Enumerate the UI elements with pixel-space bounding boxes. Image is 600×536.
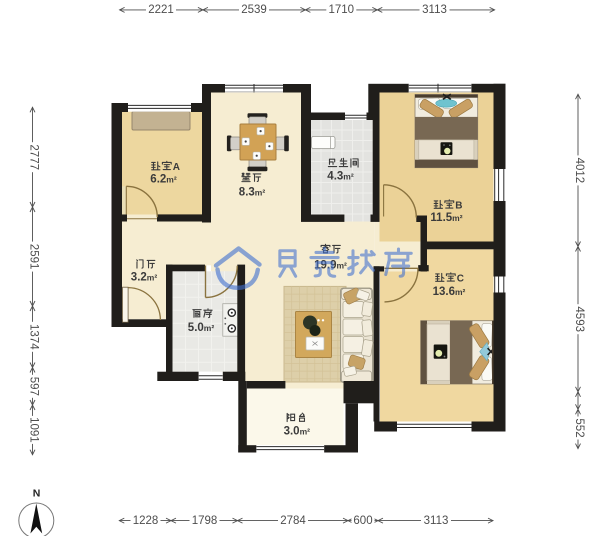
svg-text:1710: 1710: [329, 4, 355, 16]
svg-text:3113: 3113: [422, 4, 447, 16]
svg-text:2591: 2591: [27, 244, 39, 270]
svg-text:552: 552: [573, 418, 585, 437]
svg-text:13.6m²: 13.6m²: [433, 286, 466, 298]
svg-text:3.0m²: 3.0m²: [284, 425, 311, 437]
svg-text:N: N: [33, 488, 41, 500]
svg-text:2221: 2221: [148, 4, 174, 16]
svg-text:A: A: [173, 162, 180, 173]
svg-text:8.3m²: 8.3m²: [239, 186, 266, 198]
svg-text:1374: 1374: [27, 324, 39, 350]
svg-text:3113: 3113: [424, 515, 449, 527]
svg-text:1091: 1091: [27, 417, 39, 443]
svg-text:1228: 1228: [133, 515, 159, 527]
svg-text:600: 600: [353, 515, 372, 527]
svg-text:B: B: [455, 200, 462, 211]
svg-text:2539: 2539: [241, 4, 267, 16]
svg-text:C: C: [457, 273, 464, 284]
svg-text:11.5m²: 11.5m²: [430, 212, 462, 224]
svg-text:597: 597: [27, 377, 39, 396]
svg-text:1798: 1798: [192, 515, 218, 527]
svg-text:6.2m²: 6.2m²: [150, 173, 177, 185]
svg-text:4.3m²: 4.3m²: [327, 170, 354, 182]
svg-text:4012: 4012: [573, 158, 585, 184]
svg-text:5.0m²: 5.0m²: [188, 322, 215, 334]
svg-text:3.2m²: 3.2m²: [131, 271, 158, 283]
svg-text:2777: 2777: [27, 144, 39, 170]
svg-text:2784: 2784: [280, 515, 306, 527]
svg-text:4593: 4593: [573, 306, 585, 332]
